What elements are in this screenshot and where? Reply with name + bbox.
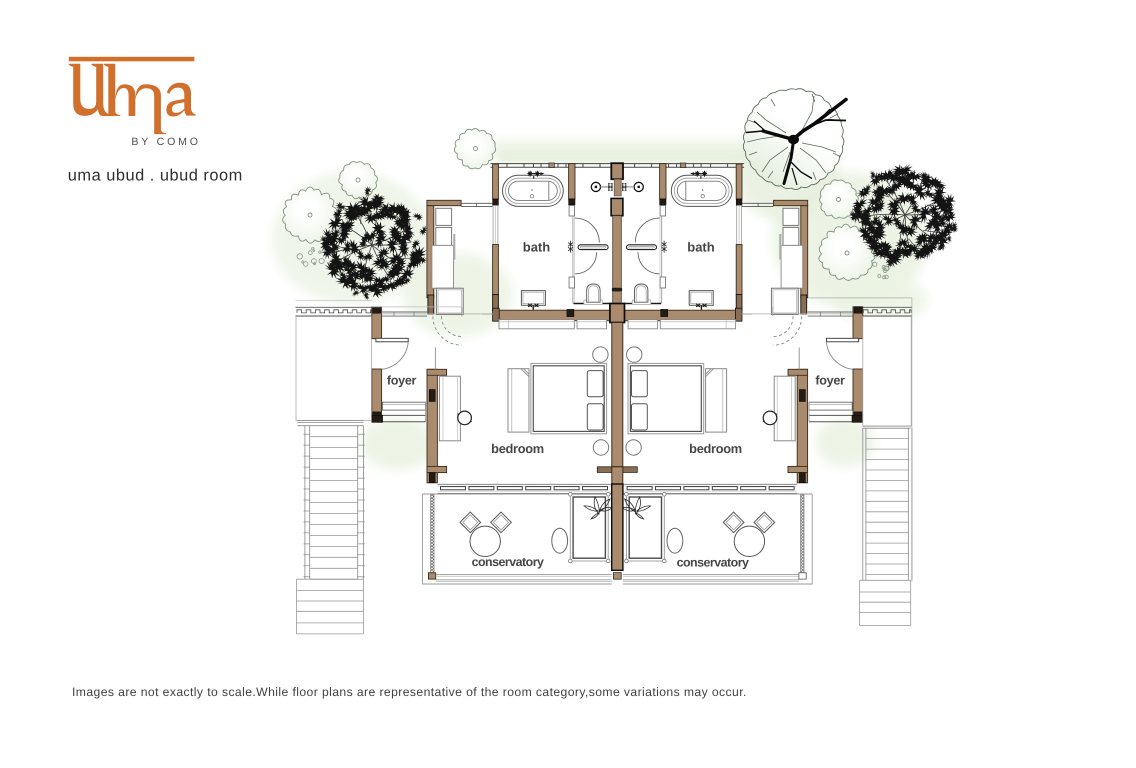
svg-text:bedroom: bedroom (689, 441, 742, 456)
svg-text:conservatory: conservatory (677, 555, 749, 569)
svg-text:foyer: foyer (387, 373, 417, 387)
svg-text:conservatory: conservatory (472, 555, 544, 569)
svg-text:uma ubud . ubud room: uma ubud . ubud room (68, 166, 243, 184)
svg-text:Images are not exactly to scal: Images are not exactly to scale.While fl… (72, 685, 747, 699)
svg-text:bedroom: bedroom (491, 441, 544, 456)
svg-text:bath: bath (687, 240, 715, 255)
svg-text:foyer: foyer (815, 373, 845, 387)
svg-text:bath: bath (523, 240, 551, 255)
svg-text:BY COMO: BY COMO (131, 136, 200, 148)
